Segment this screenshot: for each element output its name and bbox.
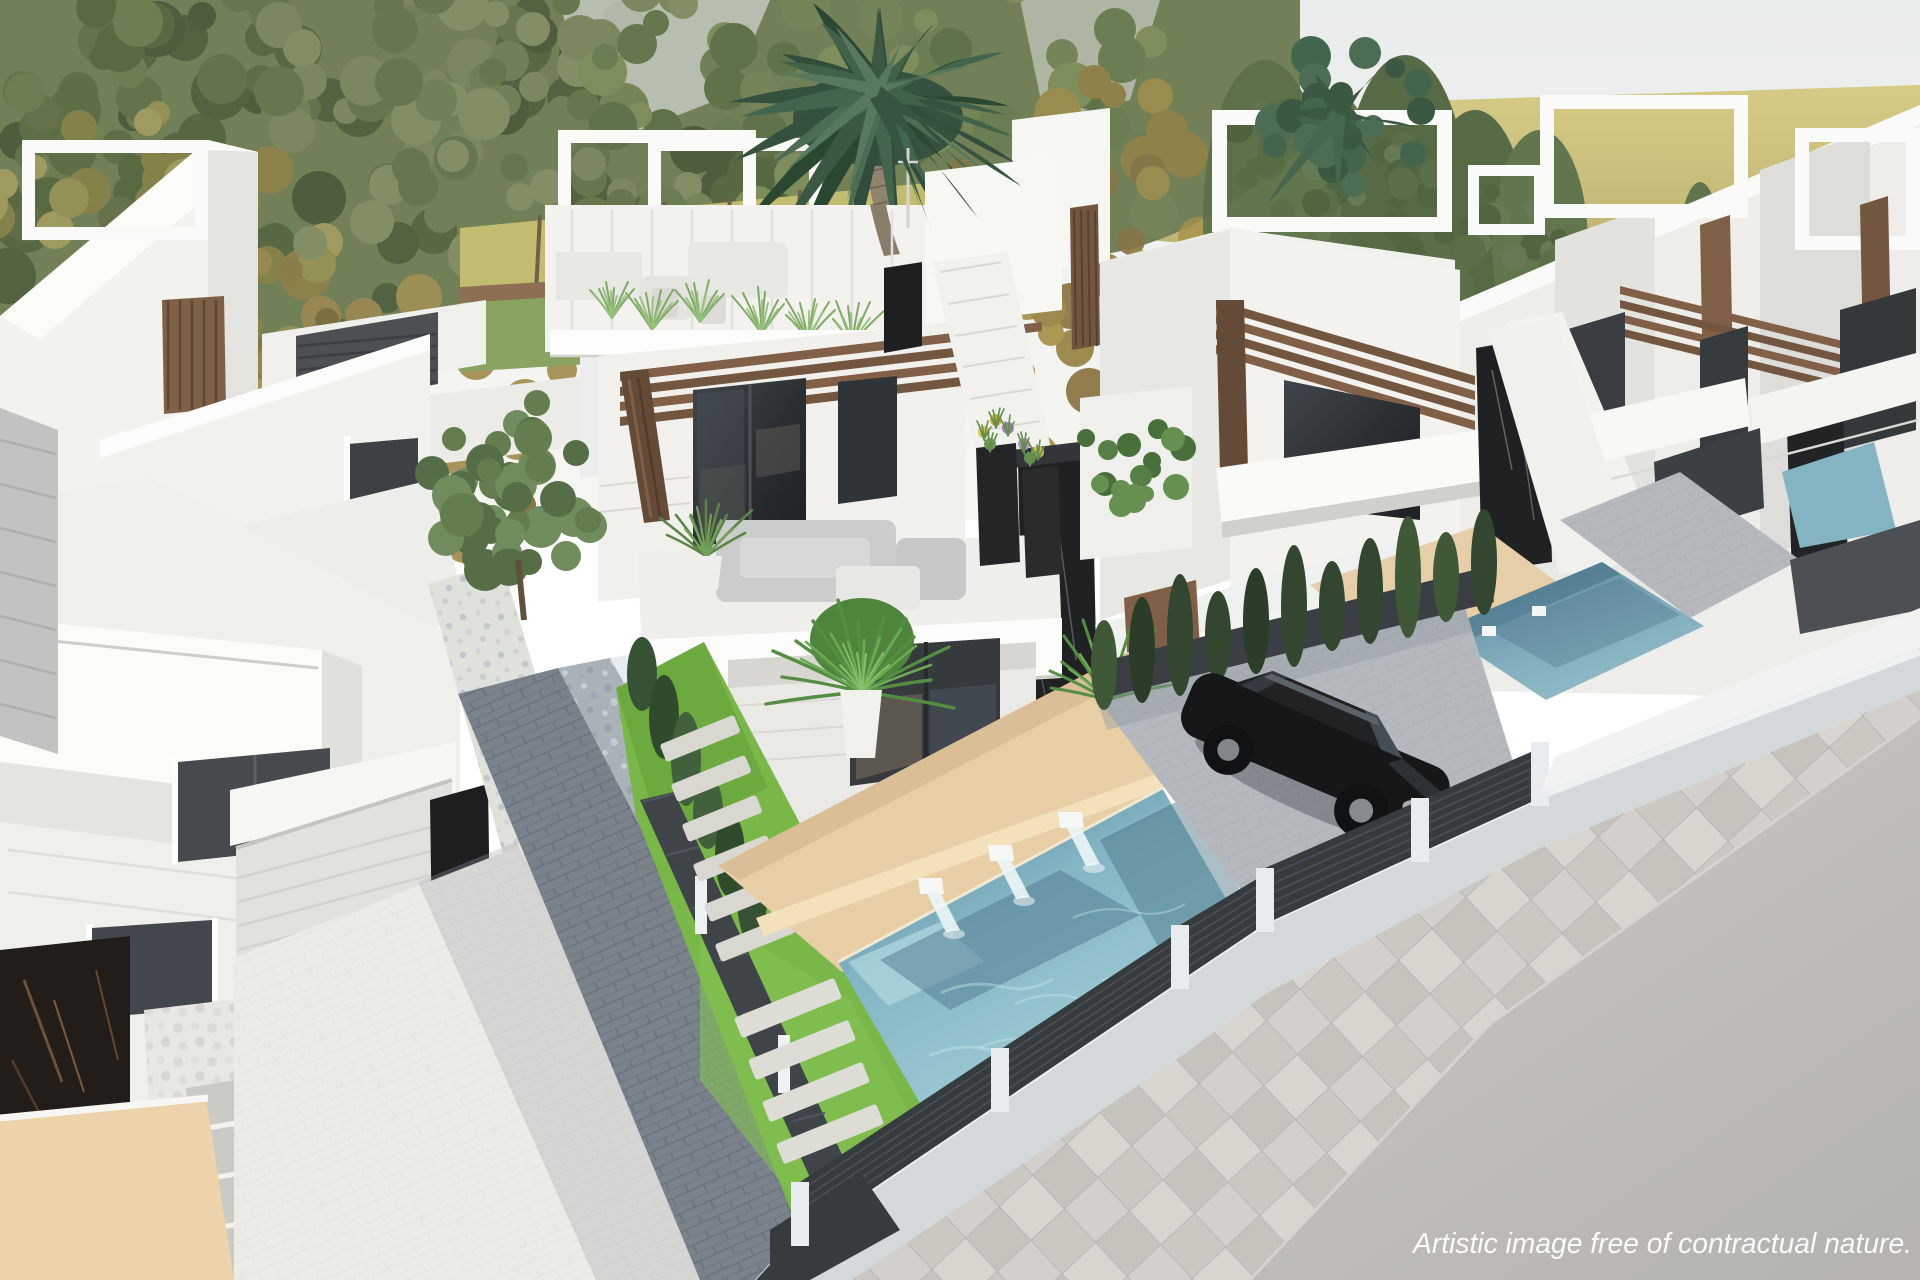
svg-text:Artistic image free of contrac: Artistic image free of contractual natur… [1411,1228,1912,1260]
